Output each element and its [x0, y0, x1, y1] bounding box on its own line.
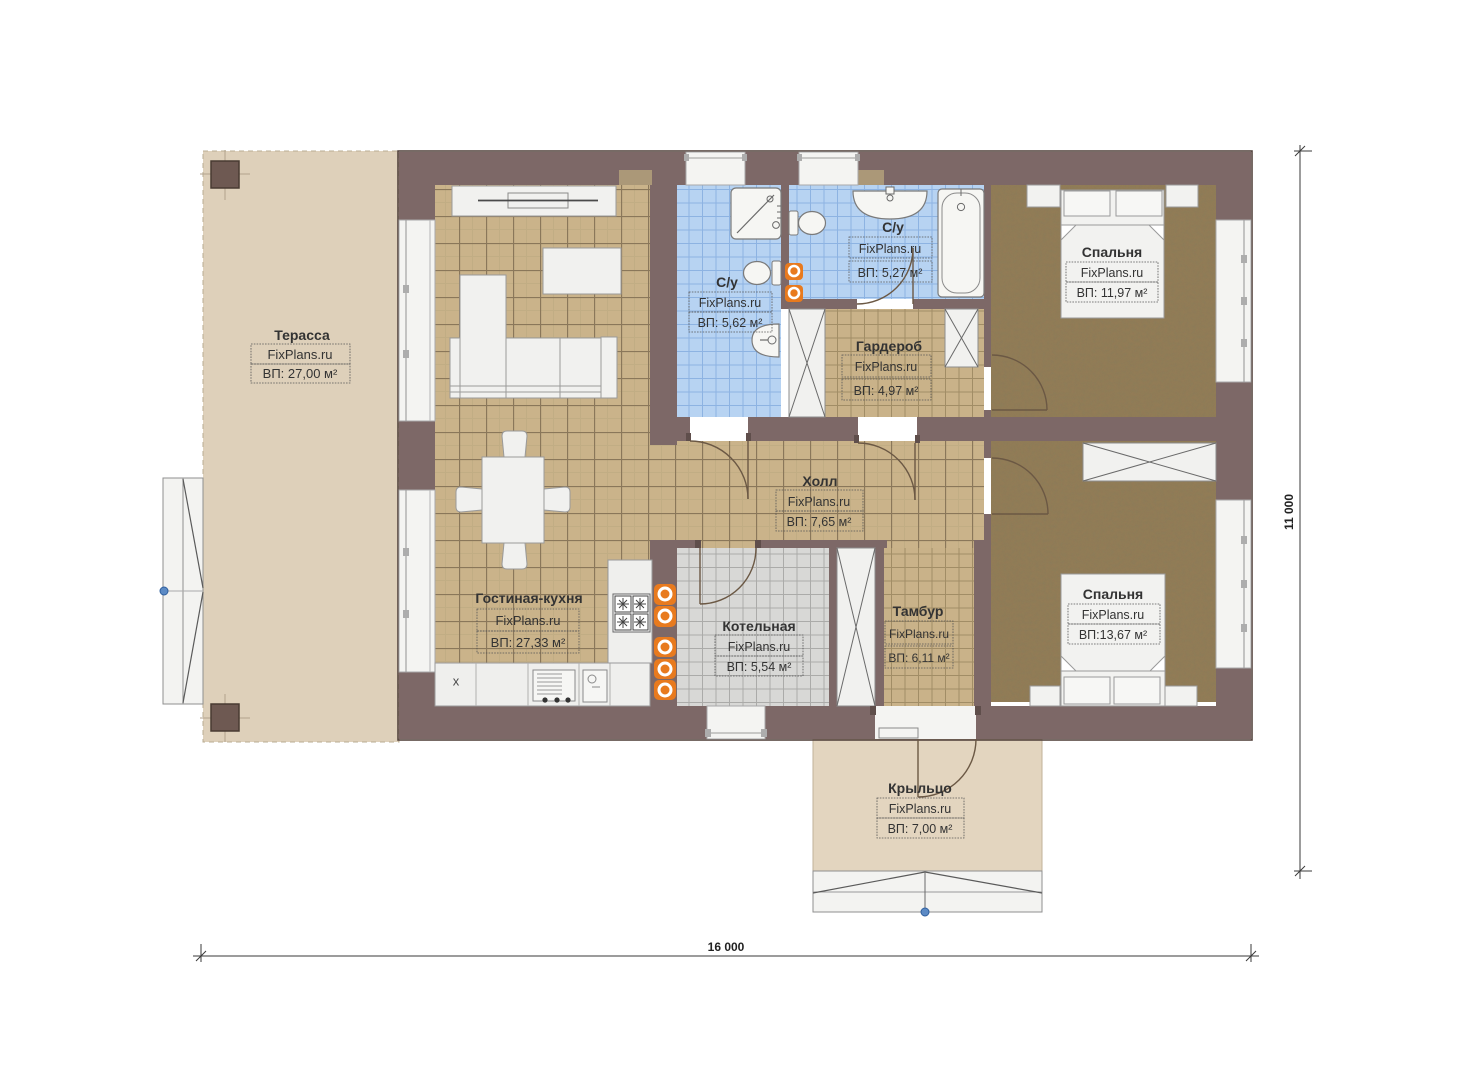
svg-text:Спальня: Спальня: [1083, 586, 1143, 602]
svg-text:С/у: С/у: [882, 219, 904, 235]
svg-text:FixPlans.ru: FixPlans.ru: [267, 347, 332, 362]
svg-text:Холл: Холл: [802, 473, 837, 489]
svg-text:ВП: 5,62 м²: ВП: 5,62 м²: [698, 316, 763, 330]
svg-text:FixPlans.ru: FixPlans.ru: [855, 360, 918, 374]
svg-text:Гардероб: Гардероб: [856, 338, 923, 354]
svg-text:FixPlans.ru: FixPlans.ru: [859, 242, 922, 256]
svg-text:FixPlans.ru: FixPlans.ru: [728, 640, 791, 654]
svg-text:FixPlans.ru: FixPlans.ru: [788, 495, 851, 509]
svg-text:Терасса: Терасса: [274, 327, 330, 343]
svg-text:FixPlans.ru: FixPlans.ru: [889, 802, 952, 816]
svg-text:ВП: 7,65 м²: ВП: 7,65 м²: [787, 515, 852, 529]
svg-text:ВП: 4,97 м²: ВП: 4,97 м²: [854, 384, 919, 398]
svg-text:FixPlans.ru: FixPlans.ru: [1081, 266, 1144, 280]
svg-text:FixPlans.ru: FixPlans.ru: [699, 296, 762, 310]
svg-text:ВП: 27,33 м²: ВП: 27,33 м²: [491, 635, 566, 650]
svg-text:ВП: 6,11 м²: ВП: 6,11 м²: [888, 651, 949, 665]
svg-text:ВП: 11,97 м²: ВП: 11,97 м²: [1077, 286, 1148, 300]
svg-text:Котельная: Котельная: [722, 618, 795, 634]
svg-text:Спальня: Спальня: [1082, 244, 1142, 260]
svg-text:ВП: 27,00 м²: ВП: 27,00 м²: [263, 366, 338, 381]
svg-text:x: x: [453, 673, 460, 688]
svg-text:FixPlans.ru: FixPlans.ru: [889, 627, 949, 641]
svg-text:ВП: 5,27 м²: ВП: 5,27 м²: [858, 266, 923, 280]
svg-text:Крыльцо: Крыльцо: [888, 780, 952, 796]
svg-text:Тамбур: Тамбур: [893, 603, 944, 619]
svg-text:ВП: 7,00 м²: ВП: 7,00 м²: [888, 822, 953, 836]
svg-text:С/у: С/у: [716, 274, 738, 290]
svg-text:FixPlans.ru: FixPlans.ru: [495, 613, 560, 628]
svg-text:ВП: 5,54 м²: ВП: 5,54 м²: [727, 660, 792, 674]
svg-text:FixPlans.ru: FixPlans.ru: [1082, 608, 1145, 622]
svg-text:16 000: 16 000: [708, 940, 745, 954]
svg-text:Гостиная-кухня: Гостиная-кухня: [475, 590, 582, 606]
svg-text:ВП:13,67 м²: ВП:13,67 м²: [1079, 628, 1147, 642]
svg-text:11 000: 11 000: [1282, 494, 1296, 530]
